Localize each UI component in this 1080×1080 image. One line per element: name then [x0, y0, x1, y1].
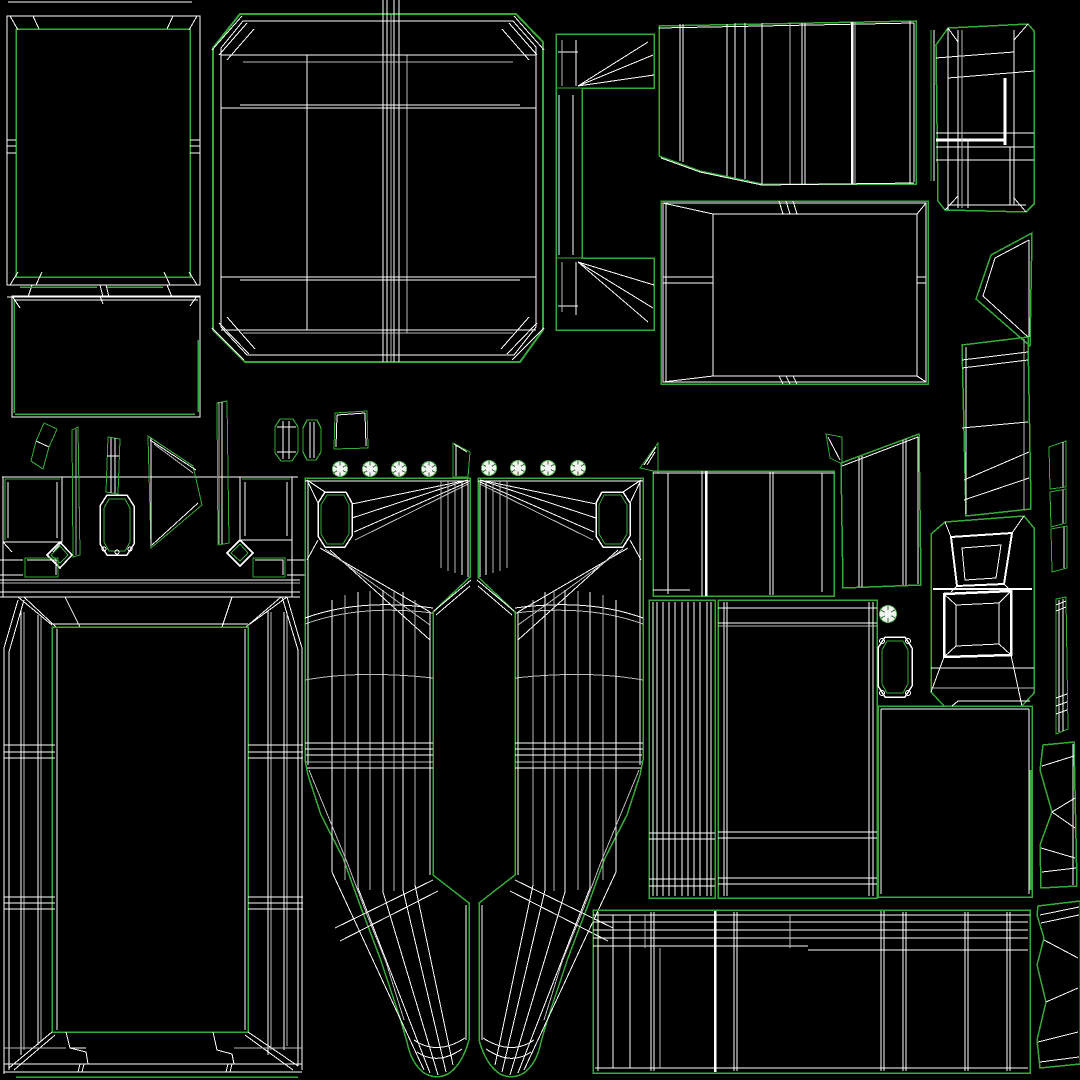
- octagon-ring-right: [878, 637, 912, 697]
- pennant-far-right: [976, 233, 1032, 346]
- ibeam-strip: [556, 34, 654, 330]
- notch-panel-far-right: [1040, 742, 1077, 888]
- rivet-circle-right: [880, 606, 897, 623]
- rivet-circle-8: [571, 461, 586, 476]
- capsule-right: [303, 420, 321, 460]
- panel-top-left: [7, 16, 200, 417]
- rect-bottom-right: [878, 701, 1032, 897]
- uv-wireframe-canvas: [0, 0, 1080, 1080]
- fan-small-left: [148, 436, 202, 548]
- wing-right: [477, 478, 643, 1077]
- panel-slant-right: [841, 434, 921, 588]
- rivet-circle-4: [422, 462, 437, 477]
- panel-right-upper: [653, 471, 834, 596]
- strip-tall-mid: [217, 401, 229, 545]
- rivet-circle-3: [392, 462, 407, 477]
- rivet-circle-1: [333, 462, 348, 477]
- frame-left: [0, 477, 305, 1077]
- sliver-far-right-top: [931, 30, 934, 181]
- strip-tall-far-right: [962, 337, 1031, 516]
- thin-strip-far-right: [1056, 597, 1068, 734]
- edge-piece-bottom-right: [1037, 901, 1080, 1068]
- striped-panel-right: [649, 600, 715, 898]
- rivet-circle-7: [541, 461, 556, 476]
- panel-center-right: [718, 600, 877, 898]
- panel-bottom-wide: [593, 910, 1030, 1073]
- sail-small: [453, 443, 470, 477]
- pennant-mid-left: [640, 443, 658, 472]
- wing-left: [305, 478, 471, 1077]
- flag-mid-right: [826, 434, 842, 464]
- rivet-circle-2: [363, 462, 378, 477]
- boomerang-small: [31, 423, 57, 469]
- complex-panel-right-center: [931, 516, 1034, 706]
- cushion-panel-top-center: [212, 0, 544, 362]
- rivet-circle-6: [511, 461, 526, 476]
- square-small: [334, 411, 368, 449]
- sliver-small-left: [72, 427, 80, 557]
- octagon-ring-left: [100, 495, 134, 555]
- striped-panel-top-right: [659, 21, 916, 185]
- rect-panel-mid-right: [661, 201, 928, 384]
- complex-panel-top-far-right: [936, 24, 1034, 212]
- band-small-left: [106, 437, 120, 494]
- capsule-left: [275, 419, 298, 461]
- rivet-circle-5: [482, 461, 497, 476]
- quad-stack-far-right: [1049, 441, 1067, 572]
- uv-wireframe-image: [0, 0, 1080, 1080]
